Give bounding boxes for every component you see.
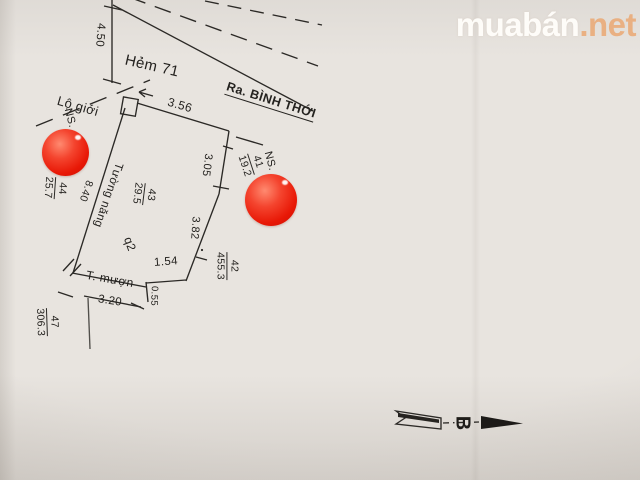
parcel-area: 455.3: [215, 252, 226, 280]
dim-alley-width: 4.50: [93, 23, 107, 48]
compass-north-label: B: [451, 416, 474, 430]
fraction-parcel-44: 44 25.7: [42, 176, 68, 199]
wall-hatch-marks: [63, 259, 81, 276]
parcel-area: 25.7: [42, 176, 55, 198]
compass-arrowhead: [481, 416, 523, 429]
parcel-area: 29.5: [130, 182, 144, 205]
tick: [223, 146, 233, 149]
sticker-highlight: [75, 135, 81, 140]
tick: [213, 186, 229, 189]
photographed-survey-document: Hẻm 71 Ra. BÌNH THỚI Lộ giới 4.50 3.56 3…: [0, 0, 640, 480]
fraction-parcel-47: 47 306.3: [34, 308, 60, 337]
red-sticker-left: [42, 129, 89, 176]
parcel-rear-edge: [146, 280, 186, 283]
survey-dot: [201, 249, 203, 251]
red-sticker-right: [245, 174, 297, 226]
parcel-number: 47: [48, 315, 60, 328]
dim-step: 0.55: [148, 286, 160, 306]
sticker-highlight: [282, 180, 288, 185]
parcel-number: 43: [144, 188, 157, 202]
dim-rear-right: 1.54: [154, 255, 179, 269]
dimension-arrow: [139, 89, 153, 97]
fraction-bar: [226, 252, 227, 280]
fraction-parcel-43: 43 29.5: [130, 182, 157, 207]
neighbor-frontage-stub: [236, 137, 263, 145]
dim-right-lower: 3.82: [188, 216, 202, 240]
parcel-area: 306.3: [34, 308, 46, 336]
road-far-dashed-line: [205, 1, 322, 25]
survey-drawing-lines: [0, 0, 640, 480]
parcel-right-upper-edge: [219, 131, 229, 194]
neighbor-boundary-line: [88, 298, 90, 349]
parcel-number: 42: [228, 260, 239, 272]
parcel-number: 44: [56, 182, 68, 195]
fraction-parcel-42: 42 455.3: [215, 252, 240, 280]
tick: [196, 257, 207, 260]
tick: [58, 292, 73, 297]
